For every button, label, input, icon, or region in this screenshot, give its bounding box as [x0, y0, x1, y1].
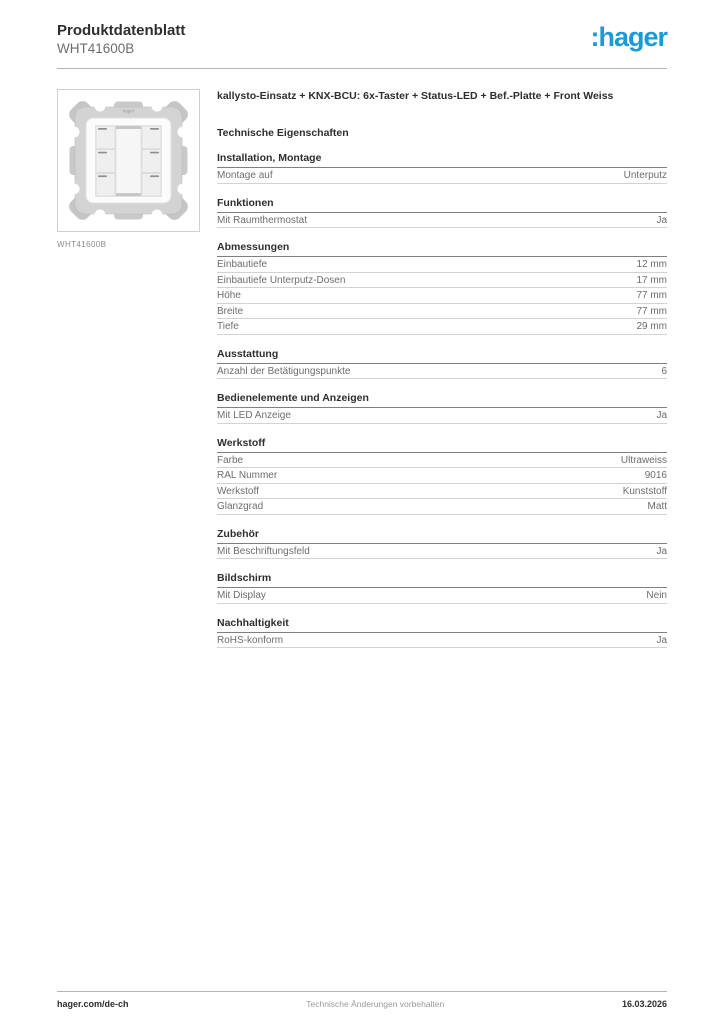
- spec-section-heading: Zubehör: [217, 528, 667, 544]
- spec-row-value: Ja: [656, 635, 667, 646]
- spec-row-value: 77 mm: [636, 306, 667, 317]
- left-button-column: [96, 126, 115, 196]
- footer-url: hager.com/de-ch: [57, 999, 129, 1009]
- spec-row-label: Einbautiefe: [217, 259, 267, 270]
- spec-row: FarbeUltraweiss: [217, 453, 667, 469]
- spec-row-value: Ja: [656, 546, 667, 557]
- spec-row: Breite77 mm: [217, 304, 667, 320]
- spec-section: Installation, MontageMontage aufUnterput…: [217, 152, 667, 184]
- spec-row-label: RoHS-konform: [217, 635, 283, 646]
- specs-title: Technische Eigenschaften: [217, 127, 667, 139]
- spec-sections: Installation, MontageMontage aufUnterput…: [217, 152, 667, 648]
- spec-row-value: Matt: [648, 501, 667, 512]
- spec-row: Höhe77 mm: [217, 288, 667, 304]
- device-brand-label: hager: [123, 109, 135, 114]
- product-image: hager: [57, 89, 200, 232]
- spec-row-value: Kunststoff: [623, 486, 667, 497]
- spec-row-label: Tiefe: [217, 321, 239, 332]
- spec-section: WerkstoffFarbeUltraweissRAL Nummer9016We…: [217, 437, 667, 515]
- spec-row: Mit BeschriftungsfeldJa: [217, 544, 667, 560]
- page-title: Produktdatenblatt: [57, 22, 185, 40]
- spec-row: Mit LED AnzeigeJa: [217, 408, 667, 424]
- spec-row-value: Ja: [656, 215, 667, 226]
- spec-row-label: Farbe: [217, 455, 243, 466]
- spec-row-label: Montage auf: [217, 170, 273, 181]
- spec-row-value: Nein: [646, 590, 667, 601]
- spec-section-heading: Bedienelemente und Anzeigen: [217, 392, 667, 408]
- spec-row-label: Höhe: [217, 290, 241, 301]
- spec-section-heading: Bildschirm: [217, 572, 667, 588]
- spec-section-heading: Nachhaltigkeit: [217, 617, 667, 633]
- spec-row-label: Mit Beschriftungsfeld: [217, 546, 310, 557]
- page-footer: hager.com/de-ch Technische Änderungen vo…: [57, 991, 667, 1009]
- spec-row-value: 6: [661, 366, 667, 377]
- spec-section-heading: Ausstattung: [217, 348, 667, 364]
- datasheet-page: Produktdatenblatt WHT41600B :hager: [0, 0, 724, 1024]
- spec-row: RoHS-konformJa: [217, 633, 667, 649]
- spec-section-heading: Werkstoff: [217, 437, 667, 453]
- product-code: WHT41600B: [57, 40, 185, 57]
- spec-row: Einbautiefe Unterputz-Dosen17 mm: [217, 273, 667, 289]
- header-text-block: Produktdatenblatt WHT41600B: [57, 22, 185, 57]
- right-button-column: [142, 126, 161, 196]
- spec-row-label: Werkstoff: [217, 486, 259, 497]
- spec-section: AusstattungAnzahl der Betätigungspunkte6: [217, 348, 667, 380]
- spec-row-value: 9016: [645, 470, 667, 481]
- product-image-caption: WHT41600B: [57, 240, 200, 249]
- spec-section: ZubehörMit BeschriftungsfeldJa: [217, 528, 667, 560]
- header-divider: [57, 68, 667, 69]
- spec-row-label: Mit LED Anzeige: [217, 410, 291, 421]
- spec-row-value: 12 mm: [636, 259, 667, 270]
- spec-section-heading: Funktionen: [217, 197, 667, 213]
- spec-section: NachhaltigkeitRoHS-konformJa: [217, 617, 667, 649]
- spec-section: BildschirmMit DisplayNein: [217, 572, 667, 604]
- spec-row: GlanzgradMatt: [217, 499, 667, 515]
- spec-row: WerkstoffKunststoff: [217, 484, 667, 500]
- spec-row: Einbautiefe12 mm: [217, 257, 667, 273]
- spec-row-label: RAL Nummer: [217, 470, 277, 481]
- hager-logo: :hager: [590, 22, 667, 52]
- spec-section: FunktionenMit RaumthermostatJa: [217, 197, 667, 229]
- spec-row-value: Ultraweiss: [621, 455, 667, 466]
- spec-row-label: Glanzgrad: [217, 501, 263, 512]
- spec-row: Anzahl der Betätigungspunkte6: [217, 364, 667, 380]
- spec-row-label: Einbautiefe Unterputz-Dosen: [217, 275, 345, 286]
- spec-row: Mit DisplayNein: [217, 588, 667, 604]
- spec-row-label: Anzahl der Betätigungspunkte: [217, 366, 350, 377]
- specs-column: kallysto-Einsatz + KNX-BCU: 6x-Taster + …: [217, 89, 667, 648]
- spec-row-label: Mit Display: [217, 590, 266, 601]
- page-header: Produktdatenblatt WHT41600B :hager: [57, 0, 667, 57]
- spec-row: RAL Nummer9016: [217, 468, 667, 484]
- spec-section-heading: Abmessungen: [217, 241, 667, 257]
- spec-row: Montage aufUnterputz: [217, 168, 667, 184]
- spec-row-label: Breite: [217, 306, 243, 317]
- spec-row-label: Mit Raumthermostat: [217, 215, 307, 226]
- product-image-column: hager: [57, 89, 200, 249]
- spec-section-heading: Installation, Montage: [217, 152, 667, 168]
- product-title: kallysto-Einsatz + KNX-BCU: 6x-Taster + …: [217, 90, 667, 103]
- main-content: hager: [57, 89, 667, 648]
- spec-section: Bedienelemente und AnzeigenMit LED Anzei…: [217, 392, 667, 424]
- spec-row-value: 17 mm: [636, 275, 667, 286]
- spec-row-value: 77 mm: [636, 290, 667, 301]
- spec-row: Mit RaumthermostatJa: [217, 213, 667, 229]
- footer-date: 16.03.2026: [622, 999, 667, 1009]
- spec-section: AbmessungenEinbautiefe12 mmEinbautiefe U…: [217, 241, 667, 335]
- spec-row: Tiefe29 mm: [217, 319, 667, 335]
- spec-row-value: Unterputz: [624, 170, 667, 181]
- footer-notice: Technische Änderungen vorbehalten: [306, 999, 444, 1009]
- knx-pushbutton-illustration: hager: [68, 100, 189, 221]
- spec-row-value: Ja: [656, 410, 667, 421]
- spec-row-value: 29 mm: [636, 321, 667, 332]
